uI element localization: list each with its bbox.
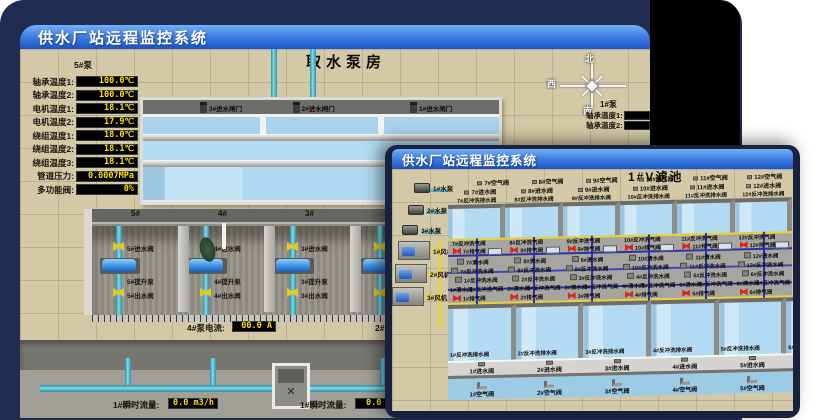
clean-water-valve-icon[interactable]: [686, 253, 693, 259]
clean-water-valve-label: 7#清水阀: [466, 258, 489, 267]
panel-row-value: 18.1℃: [76, 157, 138, 168]
filter-cell[interactable]: 5#反冲洗排水阀: [719, 297, 787, 355]
pump-label: 2#水泵: [427, 205, 447, 215]
gallery-column: 12#反冲洗气阀 12#排气阀 12#清水阀 12#反冲洗水阀 6#反冲洗水阀: [735, 231, 792, 298]
gallery-column: 11#反冲洗气阀 11#排气阀 11#清水阀 11#反冲洗水阀 5#反冲洗水阀: [677, 232, 734, 299]
lower-cells: 1#反冲洗排水阀 2#反冲洗排水阀 3#反冲洗排水阀 4#反冲洗排水阀: [448, 296, 793, 361]
flow-label-right: 1#瞬时流量:: [300, 399, 346, 411]
panel-row-value: [624, 121, 650, 130]
exhaust-valve-label: 9#排气阀: [578, 245, 601, 254]
backwash-water-valve-label: 11#反冲洗水阀: [689, 262, 725, 271]
filter-scene: 1#V滤池 1#水泵 2#水泵 3#水泵: [392, 169, 793, 411]
panel-row: 绕组温度3: 18.1℃: [28, 156, 153, 170]
backwash-water-valve-icon[interactable]: [570, 274, 577, 280]
channel-divider: [378, 117, 384, 134]
backwash-water-valve-label: 12#反冲洗水阀: [747, 260, 784, 269]
clean-water-valve-icon[interactable]: [514, 257, 521, 263]
air-valve-icon[interactable]: [532, 179, 537, 183]
backwash-water-valve-icon[interactable]: [684, 271, 691, 277]
clean-water-valve-icon[interactable]: [572, 256, 579, 262]
exhaust-valve-label: 7#排气阀: [463, 247, 486, 256]
gate-valve-icon[interactable]: [200, 102, 207, 113]
panel-header: 1#泵: [600, 99, 650, 110]
gallery-tank: [718, 243, 732, 250]
compass-north: 北: [585, 52, 594, 65]
panel-row-label: 绕组温度2:: [28, 143, 74, 155]
gallery-columns: 7#反冲洗气阀 7#排气阀 7#清水阀 7#反冲洗水阀 1#反冲洗水阀: [448, 231, 792, 305]
channel-divider: [260, 117, 266, 134]
exhaust-valve-label: 4#排气阀: [635, 290, 658, 299]
backwash-air-valve-label: 3#反冲洗气阀: [584, 282, 618, 291]
exhaust-valve-icon[interactable]: [510, 246, 518, 253]
flow-label-left: 1#瞬时流量:: [113, 399, 159, 411]
gallery-column: 9#反冲洗气阀 9#排气阀 9#清水阀 9#反冲洗水阀 3#反冲洗水阀: [563, 235, 620, 302]
panel-row: 绕组温度2: 18.1℃: [28, 143, 153, 157]
inlet-valve-unit: 4#进水阀: [651, 357, 719, 372]
exhaust-valve-icon[interactable]: [568, 292, 576, 299]
filter-cell[interactable]: [620, 200, 677, 235]
exhaust-valve-label: 3#排气阀: [578, 292, 601, 301]
pump-label: 3#提升泵: [301, 276, 328, 286]
bay-number: 4#: [179, 209, 266, 222]
pump5-sensor-panel: 5#泵 轴承温度1: 100.0℃ 轴承温度2: 100.0℃: [28, 59, 153, 197]
backwash-air-valve-label: 1#反冲洗气阀: [470, 285, 504, 294]
panel-row: 多功能阀: 0%: [28, 183, 153, 197]
gate-label: 3#进水闸门: [209, 103, 242, 113]
exhaust-valve-icon[interactable]: [453, 248, 461, 255]
panel-row-label: 轴承温度1:: [28, 76, 74, 88]
pump-motor-icon[interactable]: [414, 183, 430, 193]
backwash-water-valve-icon[interactable]: [451, 268, 458, 274]
filter-cell[interactable]: [448, 204, 505, 239]
bay-divider: [178, 226, 189, 312]
air-valve-unit: 2#空气阀: [516, 376, 584, 399]
panel-row-value: 18.1℃: [76, 103, 138, 114]
exhaust-valve-label: 2#排气阀: [520, 293, 543, 302]
backwash-water-valve-icon[interactable]: [566, 265, 573, 271]
compass-west: 西: [547, 77, 556, 90]
white-pipe: [222, 223, 226, 249]
gate-label: 2#进水闸门: [302, 103, 335, 113]
backwash-water-valve-icon[interactable]: [738, 261, 745, 267]
lift-pump-icon[interactable]: [276, 259, 310, 272]
panel-rows: 轴承温度1: 100.0℃ 轴承温度2: 100.0℃ 电机温度1: 18.1℃: [28, 75, 153, 197]
air-valve-unit: 1#空气阀: [448, 377, 516, 400]
inlet-valve-label: 2#进水阀: [537, 364, 562, 374]
exhaust-valve-label: 12#排气阀: [750, 241, 776, 250]
gallery-tank: [660, 244, 674, 251]
panel-row: 轴承温度2:: [586, 121, 650, 132]
panel-row-label: 轴承温度2:: [28, 89, 74, 101]
gate-unit: 3#进水闸门: [200, 102, 242, 113]
clean-water-valve-label: 12#清水阀: [753, 252, 779, 261]
backwash-water-valve-icon[interactable]: [623, 264, 630, 270]
filter-cell[interactable]: [677, 198, 734, 233]
exhaust-valve-icon[interactable]: [510, 293, 518, 300]
panel-row-value: [624, 111, 650, 120]
wash-pump: 2#水泵: [408, 205, 447, 215]
panel-row-label: 电机温度1:: [28, 103, 74, 115]
clean-water-valve-label: 10#清水阀: [638, 254, 664, 263]
panel-row-label: 电机温度2:: [28, 116, 74, 128]
gallery-column: 8#反冲洗气阀 8#排气阀 8#清水阀 8#反冲洗水阀 2#反冲洗水阀: [505, 236, 562, 303]
exhaust-valve-icon[interactable]: [740, 241, 748, 248]
backwash-water-valve-icon[interactable]: [742, 270, 749, 276]
pump-label: 4#提升泵: [214, 276, 241, 286]
pump-label: 3#水泵: [421, 225, 441, 235]
panel-row: 电机温度2: 17.9℃: [28, 116, 153, 130]
outlet-valve-label: 4#出水阀: [214, 290, 241, 300]
exhaust-valve-icon[interactable]: [625, 244, 633, 251]
bay-divider: [350, 226, 361, 312]
panel-row-value: 100.0℃: [76, 90, 138, 101]
room-title: 取水泵房: [306, 51, 386, 72]
window-filter-pool: 供水厂站远程监控系统 1#V滤池 1#水泵 2#水泵 3#水泵: [385, 145, 800, 418]
air-valve-icon[interactable]: [693, 176, 698, 180]
exhaust-valve-label: 10#排气阀: [635, 243, 661, 252]
panel-row: 轴承温度1:: [586, 110, 650, 121]
exhaust-valve-icon[interactable]: [682, 243, 690, 250]
panel-row-value: 18.0℃: [76, 130, 138, 141]
exhaust-valve-label: 1#排气阀: [463, 294, 486, 303]
gallery-tank: [775, 241, 789, 248]
backwash-water-valve-label: 6#反冲洗水阀: [751, 269, 785, 278]
drain-valve-label: 5#反冲洗排水阀: [721, 344, 760, 353]
blower-icon[interactable]: [395, 264, 427, 283]
gallery-column: 7#反冲洗气阀 7#排气阀 7#清水阀 7#反冲洗水阀 1#反冲洗水阀: [448, 238, 505, 305]
inlet-valve-label: 4#进水阀: [672, 361, 697, 371]
panel-row-value: 18.1℃: [76, 144, 138, 155]
blower-icon[interactable]: [392, 287, 424, 306]
panel-row-label: 轴承温度1:: [586, 110, 623, 121]
outlet-valve-label: 5#出水阀: [127, 290, 154, 300]
intake-channel: [143, 117, 499, 134]
intake-walkway: 3#进水闸门 2#进水闸门 1#进水闸门: [143, 100, 499, 117]
backwash-water-valve-label: 8#反冲洗水阀: [517, 266, 551, 275]
blower-label: 3#风机: [427, 292, 447, 302]
backwash-water-valve-label: 5#反冲洗水阀: [693, 271, 727, 280]
outlet-valve-label: 3#出水阀: [301, 290, 328, 300]
blower-unit: 3#风机: [392, 287, 447, 306]
inlet-valve-unit: 5#进水阀: [719, 355, 787, 370]
pipe: [310, 49, 316, 99]
gate-label: 1#进水闸门: [419, 103, 452, 113]
pump-current-label: 4#泵电流:: [187, 322, 225, 334]
filter-cell[interactable]: 2#反冲洗排水阀: [516, 302, 584, 360]
gate-unit: 1#进水闸门: [410, 102, 452, 113]
panel-row-value: 0%: [76, 184, 138, 195]
gate-valve-icon[interactable]: [410, 102, 417, 113]
valve-gallery: 7#反冲洗气阀 7#排气阀 7#清水阀 7#反冲洗水阀 1#反冲洗水阀: [448, 231, 792, 305]
exhaust-valve-icon[interactable]: [453, 295, 461, 302]
panel-row-label: 绕组温度3:: [28, 157, 74, 169]
inlet-valve-unit: 3#进水阀: [583, 358, 651, 373]
titlebar-filter[interactable]: 供水厂站远程监控系统: [392, 149, 793, 169]
backwash-water-valve-label: 1#反冲洗水阀: [464, 276, 498, 285]
backwash-water-valve-icon[interactable]: [627, 273, 634, 279]
pump-motor-icon[interactable]: [408, 205, 424, 215]
panel-row-label: 管道压力:: [28, 170, 74, 182]
inlet-valve-icon[interactable]: [521, 189, 526, 193]
gate-valve-icon[interactable]: [293, 102, 300, 113]
exhaust-valve-label: 11#排气阀: [692, 242, 717, 251]
inlet-valve-unit: 2#进水阀: [516, 360, 584, 375]
filter-cell[interactable]: [563, 201, 620, 236]
branch-pipe: [125, 358, 131, 388]
clean-water-valve-label: 8#清水阀: [523, 257, 546, 266]
backwash-water-valve-label: 4#反冲洗水阀: [636, 272, 670, 281]
branch-pipe: [210, 358, 216, 388]
filter-cell[interactable]: 3#反冲洗排水阀: [583, 300, 651, 358]
flow-meter-icon: ✕: [275, 386, 307, 398]
screen: 供水厂站远程监控系统 取水泵房 3#进水闸门 2#进水闸门: [0, 0, 815, 420]
inlet-valve-label: 5#进水阀: [740, 360, 765, 370]
exhaust-valve-label: 5#排气阀: [692, 289, 715, 298]
air-valve-icon[interactable]: [586, 178, 591, 182]
exhaust-valve-icon[interactable]: [568, 245, 576, 252]
panel-row-label: 多功能阀:: [28, 184, 74, 196]
gate-unit: 2#进水闸门: [293, 102, 335, 113]
blower-unit: 2#风机: [395, 264, 450, 283]
bay-number: 3#: [266, 209, 353, 222]
pump1-sensor-panel: 1#泵 轴承温度1: 轴承温度2:: [586, 99, 650, 131]
exhaust-valve-icon[interactable]: [625, 291, 633, 298]
pump-motor-icon[interactable]: [402, 225, 418, 235]
panel-row: 绕组温度1: 18.0℃: [28, 129, 153, 143]
exhaust-valve-icon[interactable]: [682, 290, 690, 297]
air-valve-icon[interactable]: [639, 177, 644, 181]
exhaust-valve-label: 8#排气阀: [520, 246, 543, 255]
inlet-valve-label: 3#进水阀: [605, 363, 630, 373]
inlet-valve-unit: 6#进水阀: [786, 354, 793, 369]
air-valve-unit: 4#空气阀: [651, 373, 719, 396]
air-valve-label: 3#空气阀: [605, 386, 630, 396]
drain-valve-label: 1#反冲洗排水阀: [450, 350, 489, 359]
backwash-water-valve-icon[interactable]: [512, 275, 519, 281]
backwash-water-valve-label: 9#反冲洗水阀: [575, 264, 609, 273]
inlet-valve-unit: 1#进水阀: [448, 361, 516, 376]
panel-header: 5#泵: [74, 59, 153, 71]
inlet-valve-icon[interactable]: [578, 187, 583, 191]
air-valve-label: 2#空气阀: [537, 387, 562, 397]
bay-divider: [264, 226, 275, 312]
inlet-valve-label: 3#进水阀: [301, 243, 328, 253]
pump-current-value: 00.0 A: [232, 321, 276, 332]
air-valve-label: 5#空气阀: [740, 383, 765, 393]
filter-cell[interactable]: 4#反冲洗排水阀: [651, 299, 719, 357]
exhaust-valve-label: 6#排气阀: [750, 288, 773, 297]
panel-row-label: 绕组温度1:: [28, 130, 74, 142]
panel-row: 管道压力: 0.0007MPa: [28, 170, 153, 184]
inlet-valve-icon[interactable]: [746, 184, 751, 188]
panel-row-value: 100.0℃: [76, 76, 138, 87]
air-valve-unit: 6#空气阀: [786, 370, 793, 393]
filter-cell[interactable]: [735, 197, 792, 232]
pump-label: 5#提升泵: [127, 276, 154, 286]
exhaust-valve-icon[interactable]: [740, 288, 748, 295]
backwash-water-valve-icon[interactable]: [455, 277, 462, 283]
backwash-water-valve-label: 10#反冲洗水阀: [632, 263, 669, 272]
intake-wall: [143, 134, 499, 141]
inlet-valve-icon[interactable]: [633, 186, 638, 190]
bay-number: 5#: [92, 209, 179, 222]
pump-bay: 3#进水阀 3#提升泵 3#出水阀: [266, 226, 353, 315]
panel-row-value: 0.0007MPa: [76, 171, 138, 182]
air-valve-icon[interactable]: [747, 175, 752, 179]
drain-valve-label: 2#反冲洗排水阀: [518, 349, 557, 358]
gallery-tank: [546, 246, 560, 253]
gallery-tank: [603, 245, 617, 252]
backwash-water-valve-label: 2#反冲洗水阀: [521, 275, 555, 284]
panel-row-label: 轴承温度2:: [586, 120, 623, 131]
inlet-valve-label: 4#进水阀: [214, 243, 241, 253]
titlebar-intake[interactable]: 供水厂站远程监控系统: [20, 25, 650, 49]
air-valve-icon[interactable]: [477, 181, 482, 185]
flow-meter-display: [278, 369, 304, 383]
drain-valve-label: 6#反冲洗排水阀: [788, 342, 793, 351]
backwash-air-valve-label: 4#反冲洗气阀: [642, 281, 676, 290]
backwash-air-valve-label: 5#反冲洗气阀: [699, 280, 733, 289]
air-valve-unit: 3#空气阀: [583, 374, 651, 397]
wash-pump: 3#水泵: [402, 225, 441, 235]
backwash-water-valve-icon[interactable]: [508, 266, 515, 272]
blower-icon[interactable]: [398, 241, 430, 260]
pipe: [271, 49, 277, 99]
blower-unit: 1#风机: [398, 241, 453, 260]
backwash-air-valve-label: 2#反冲洗气阀: [527, 283, 561, 292]
backwash-water-valve-label: 3#反冲洗水阀: [579, 273, 613, 282]
air-valve-unit: 5#空气阀: [719, 371, 787, 394]
inlet-valve-icon[interactable]: [464, 190, 469, 194]
filter-pool-block: 7#空气阀 8#空气阀 9#空气阀: [448, 171, 792, 409]
wash-units: 1#水泵 2#水泵 3#水泵 1#风机: [392, 179, 450, 359]
flow-value-left: 0.0 m3/h: [168, 398, 218, 409]
pump-bay: 5#进水阀 5#提升泵 5#出水阀: [92, 226, 179, 315]
inlet-valve-label: 1#进水阀: [469, 366, 494, 376]
window-title: 供水厂站远程监控系统: [38, 27, 208, 48]
clean-water-valve-icon[interactable]: [744, 252, 751, 258]
clean-water-valve-label: 9#清水阀: [581, 255, 604, 264]
clean-water-valve-label: 11#清水阀: [695, 253, 720, 262]
filter-cell[interactable]: 6#反冲洗排水阀: [786, 296, 793, 354]
lift-pump-icon[interactable]: [102, 259, 136, 272]
panel-row: 轴承温度2: 100.0℃: [28, 89, 153, 103]
panel-row: 轴承温度1: 100.0℃: [28, 75, 153, 89]
air-valve-label: 1#空气阀: [469, 389, 494, 399]
inlet-valve-label: 5#进水阀: [127, 243, 154, 253]
clean-water-valve-icon[interactable]: [629, 255, 636, 261]
gallery-column: 10#反冲洗气阀 10#排气阀 10#清水阀 10#反冲洗水阀 4#反冲洗水阀: [620, 234, 677, 301]
gallery-tank: [488, 248, 502, 255]
drain-valve-label: 3#反冲洗排水阀: [585, 347, 624, 356]
window-title: 供水厂站远程监控系统: [402, 150, 537, 169]
filter-cell[interactable]: 1#反冲洗排水阀: [448, 303, 516, 361]
backwash-water-valve-label: 7#反冲洗水阀: [460, 267, 494, 276]
black-side-panel: [650, 0, 740, 146]
inlet-valve-icon[interactable]: [690, 185, 695, 189]
drain-valve-label: 4#反冲洗排水阀: [653, 345, 692, 354]
clean-water-valve-icon[interactable]: [457, 259, 464, 265]
backwash-air-valve-label: 6#反冲洗气阀: [756, 278, 790, 287]
filter-cell[interactable]: [505, 202, 562, 237]
panel-row: 电机温度1: 18.1℃: [28, 102, 153, 116]
backwash-water-valve-icon[interactable]: [680, 263, 687, 269]
air-valve-label: 4#空气阀: [672, 384, 697, 394]
panel-row-value: 17.9℃: [76, 117, 138, 128]
